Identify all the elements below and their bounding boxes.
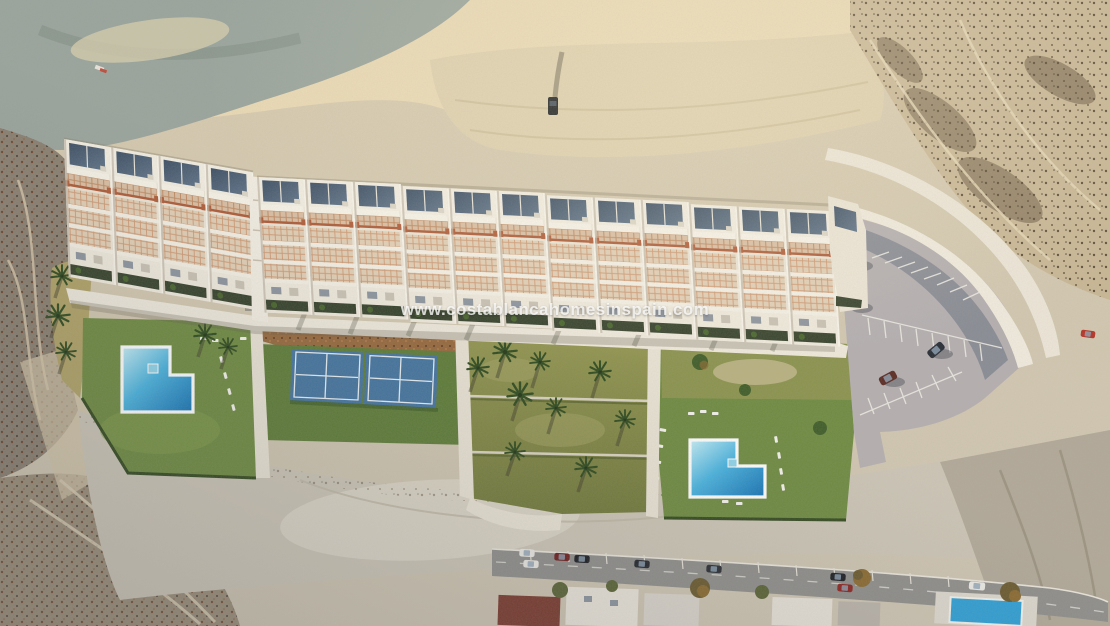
aerial-render-image: www.costablancahomesinspain.com [0, 0, 1110, 626]
scene-canvas [0, 0, 1110, 626]
photo-grain [0, 0, 1110, 626]
